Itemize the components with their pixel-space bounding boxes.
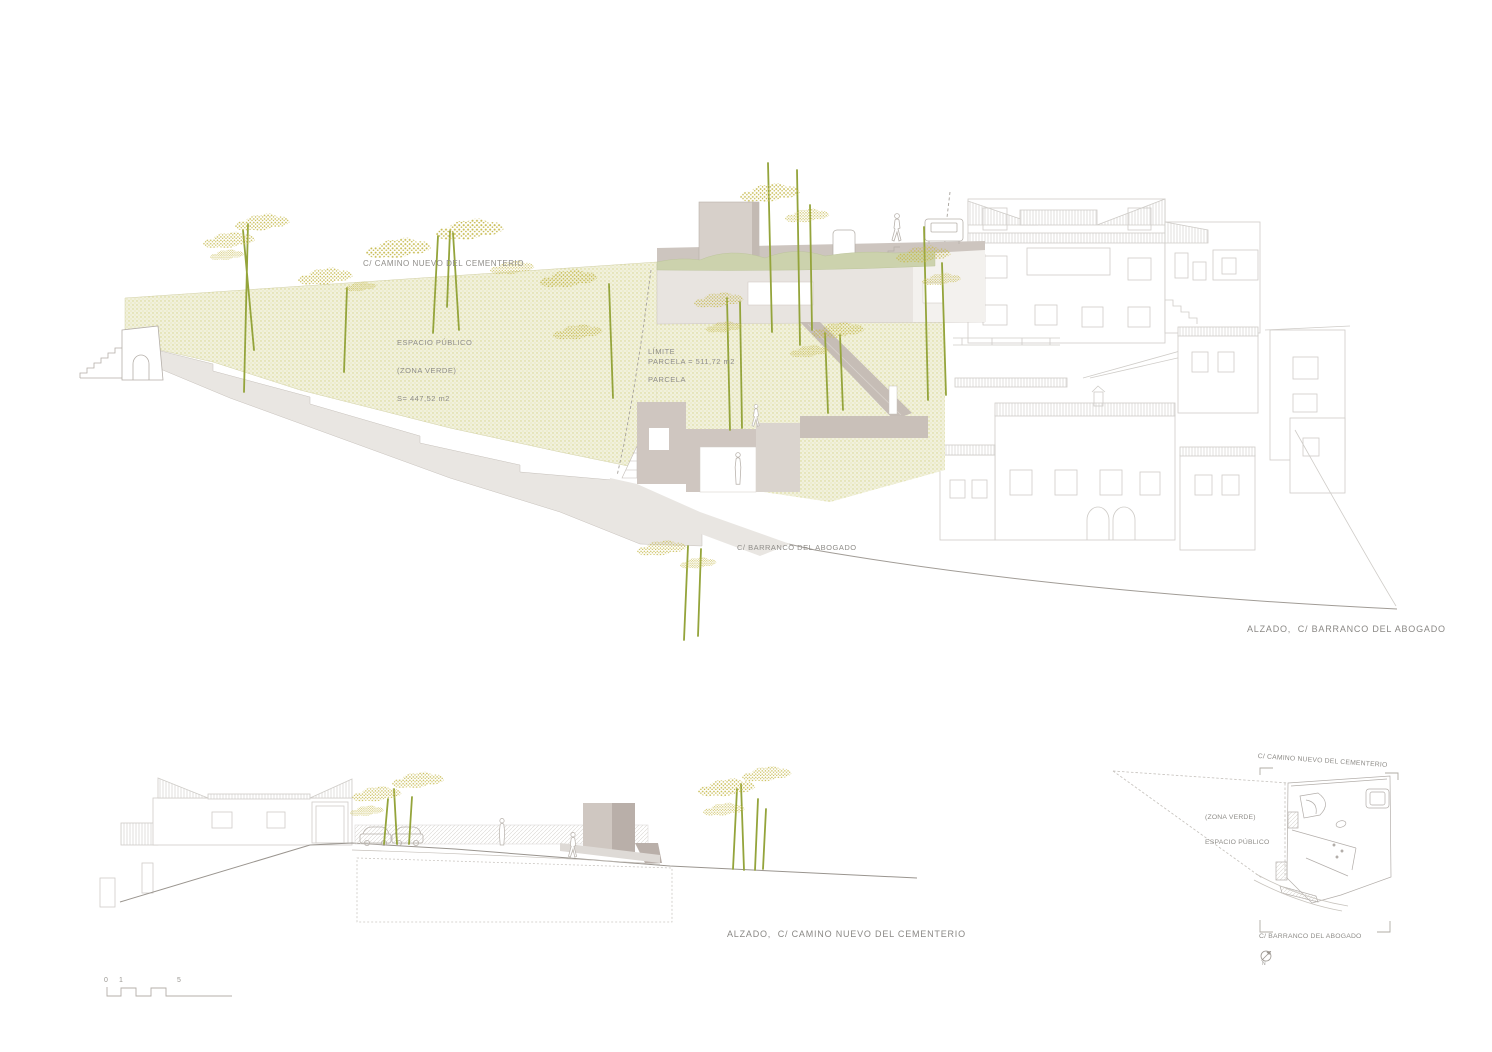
standing-person xyxy=(499,819,504,845)
basement-outline xyxy=(357,858,672,922)
espacio-line3: S= 447,52 m2 xyxy=(397,394,472,403)
plan-building xyxy=(1276,776,1391,903)
secondary-elevation xyxy=(100,766,917,922)
street-label-barranco: C/ BARRANCO DEL ABOGADO xyxy=(737,543,857,552)
plan-zone-line2: ESPACIO PÚBLICO xyxy=(1205,839,1269,847)
background-houses xyxy=(940,199,1396,606)
espacio-line2: (ZONA VERDE) xyxy=(397,366,472,375)
plan-zone-label: (ZONA VERDE) ESPACIO PÚBLICO xyxy=(1205,797,1269,856)
plan-zone-line1: (ZONA VERDE) xyxy=(1205,814,1269,822)
limite-line2: PARCELA xyxy=(648,375,686,384)
car-front xyxy=(925,219,963,244)
secondary-elevation-title: ALZADO, C/ CAMINO NUEVO DEL CEMENTERIO xyxy=(727,929,966,940)
walking-person xyxy=(892,214,901,241)
scale-bar xyxy=(107,987,232,996)
drawing-sheet: C/ CAMINO NUEVO DEL CEMENTERIO ESPACIO P… xyxy=(0,0,1492,1052)
lower-band xyxy=(800,416,928,438)
espacio-publico-label: ESPACIO PÚBLICO (ZONA VERDE) S= 447,52 m… xyxy=(397,319,472,413)
espacio-line1: ESPACIO PÚBLICO xyxy=(397,338,472,347)
tower-shade xyxy=(752,202,759,264)
slab-window xyxy=(748,282,813,305)
drawing-canvas xyxy=(0,0,1492,1052)
lower-room xyxy=(700,447,756,492)
parcela-area-label: PARCELA = 511,72 m2 xyxy=(648,357,735,366)
corner-brackets xyxy=(1260,768,1398,932)
plan-street-label-bottom: C/ BARRANCO DEL ABOGADO xyxy=(1259,933,1362,941)
scale-tick-1: 1 xyxy=(119,977,123,986)
scale-tick-0: 0 xyxy=(104,977,108,986)
scale-tick-5: 5 xyxy=(177,977,181,986)
left-stairs-wall xyxy=(80,326,163,380)
street-label-cementerio: C/ CAMINO NUEVO DEL CEMENTERIO xyxy=(363,259,524,269)
north-label: N xyxy=(1262,961,1266,967)
limite-line1: LÍMITE xyxy=(648,347,686,356)
street-line-cementerio xyxy=(120,843,917,902)
main-elevation-title: ALZADO, C/ BARRANCO DEL ABOGADO xyxy=(1247,624,1446,635)
secondary-houses xyxy=(100,778,352,907)
north-arrow-icon xyxy=(1261,951,1271,961)
